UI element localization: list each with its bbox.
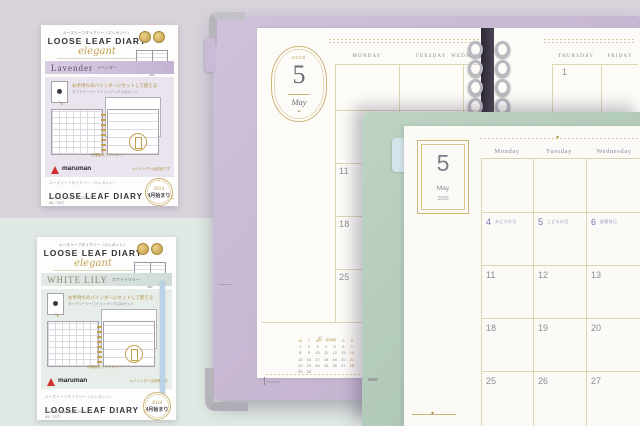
index-tab-sketch: [131, 349, 138, 361]
gold-stamp-icon: [137, 243, 149, 255]
frame-ornament-icon: ✦: [297, 109, 301, 115]
date-cell: 12: [538, 270, 548, 280]
weekday-friday: FRIDAY: [607, 54, 632, 59]
binder-sketch-dot: [57, 89, 62, 94]
date-cell: 11: [486, 270, 495, 280]
grid-line: [552, 64, 553, 114]
weekday-tuesday: TUESDAY: [415, 54, 446, 59]
illustration-band: ↪ お手持ちのバインダーにセットして使える ダイアリーリーフ＋インデックスのセッ…: [45, 77, 174, 177]
date-cell: 19: [538, 323, 548, 333]
grid-line: [481, 212, 640, 213]
gold-stamp-icon: [151, 243, 163, 255]
footer-spec2: A5／20穴: [45, 415, 60, 420]
grid-line: [601, 64, 602, 114]
date-cell: 26: [538, 376, 548, 386]
package-title: LOOSE LEAF DIARY: [44, 248, 143, 258]
frame-date: 5: [437, 150, 450, 177]
holiday-note: 振替休日: [600, 219, 617, 225]
holiday-note: こどもの日: [547, 219, 569, 225]
maruman-logo-text: maruman: [62, 165, 91, 172]
badge-label: 4月始まり: [148, 192, 171, 199]
package-script-name: elegant: [74, 258, 112, 269]
holiday-date-cell: 6: [591, 217, 596, 227]
gold-dotted-border-right2: [544, 42, 636, 43]
color-name-stripe: Lavender ラベンダー: [45, 61, 174, 74]
frame-date: 5: [293, 60, 306, 90]
package-script-name: elegant: [78, 46, 116, 57]
grid-line: [335, 64, 481, 65]
date-cell: 25: [339, 272, 350, 282]
spiral-binding-icon: [101, 111, 106, 151]
gold-dotted-border-left: [329, 39, 480, 40]
badge-label: 4月始まり: [146, 406, 169, 413]
binder-side-tab: [205, 38, 215, 72]
maruman-logo-icon: [47, 378, 55, 386]
binder-ring-icon: [495, 60, 510, 77]
frame-year: 2020: [437, 196, 448, 202]
spread-illustration: 月曜始まりマンスリー: [51, 97, 168, 161]
grid-line: [481, 371, 640, 372]
left-page-sketch: [51, 109, 103, 155]
grid-line: [533, 158, 534, 426]
binder-ring-icon: [468, 60, 483, 77]
date-cell: 13: [591, 270, 601, 280]
weekday-monday: Monday: [494, 148, 519, 155]
binder-ring-icon: [495, 79, 510, 96]
memo-tab-label: memo: [267, 379, 280, 384]
color-name: Lavender: [51, 63, 93, 73]
grid-line: [586, 158, 587, 426]
grid-line: [481, 318, 640, 319]
feature-callout-text: 月曜始まりマンスリー: [91, 153, 126, 158]
footer-spec2: A5／20穴: [49, 201, 64, 206]
weekday-wednesday: Wednesday: [596, 148, 631, 155]
grid-line: [552, 64, 638, 65]
product-photo-scene: 2020 5 May ✦ MONDAY TUESDAY WEDNESDAY TH…: [0, 0, 640, 426]
weekday-thursday: THURSDAY: [558, 54, 594, 59]
color-name: WHITE LILY: [47, 275, 108, 285]
binder-ring-icon: [468, 41, 483, 58]
frame-month: May: [437, 185, 449, 192]
holiday-date-cell: 4: [486, 217, 491, 227]
date-cell: 27: [591, 376, 601, 386]
grid-line: [335, 110, 481, 111]
left-page-sketch: [47, 321, 99, 367]
header-rule: [57, 58, 137, 59]
date-cell: 18: [486, 323, 496, 333]
package-whitelily: ルーズリーフダイアリー〈エレガント〉 LOOSE LEAF DIARY eleg…: [37, 237, 176, 420]
weekday-tuesday: Tuesday: [546, 148, 572, 155]
month-frame-rect: 5 May 2020: [417, 140, 469, 214]
logo-note: ＊バインダーは別売です: [132, 167, 171, 172]
date-cell: 25: [486, 376, 496, 386]
grid-line: [481, 158, 640, 159]
feature-callout-circle: [129, 133, 147, 151]
feature-heading: お手持ちのバインダーにセットして使える: [68, 295, 153, 301]
illustration-band: ↪ お手持ちのバインダーにセットして使える ダイアリーリーフ＋インデックスのセッ…: [41, 289, 172, 389]
date-cell: 20: [591, 323, 601, 333]
gold-stamp-icon: [139, 31, 151, 43]
cover-clasp-line: [219, 284, 233, 285]
binder-corner-protector-bottom: [205, 368, 248, 411]
grid-line: [481, 265, 640, 266]
grid-line: [481, 158, 482, 426]
start-month-badge: 2024 4月始まり: [145, 178, 173, 206]
maruman-logo-icon: [51, 166, 59, 174]
feature-callout-text: 月曜始まりマンスリー: [87, 365, 122, 370]
binder-sketch-dot: [53, 301, 58, 306]
package-lavender: ルーズリーフダイアリー〈エレガント〉 LOOSE LEAF DIARY eleg…: [41, 25, 178, 206]
date-cell: 18: [339, 219, 350, 229]
gold-dotted-border-left2: [329, 42, 480, 43]
binder-ring-icon: [468, 79, 483, 96]
header-rule: [53, 270, 133, 271]
color-kana: ラベンダー: [97, 65, 117, 71]
feature-sub: ダイアリーリーフ＋インデックスのセット: [68, 302, 134, 307]
color-kana: ホワイトリリー: [112, 277, 140, 283]
feature-heading: お手持ちのバインダーにセットして使える: [72, 83, 157, 89]
month-frame-ornate: 2020 5 May ✦: [271, 46, 327, 122]
maruman-logo-text: maruman: [58, 377, 87, 384]
gold-dotted-border-right: [544, 39, 636, 40]
mini-calendar-grid: MTWTFSS123456789101112131415161718192021…: [296, 338, 358, 375]
grid-line: [335, 64, 336, 322]
feature-sub: ダイアリーリーフ＋インデックスのセット: [72, 90, 138, 95]
feature-callout-circle: [125, 345, 143, 363]
gold-stamp-icon: [153, 31, 165, 43]
index-tab-sketch: [135, 137, 142, 149]
frame-month: May: [291, 97, 306, 107]
sage-cover-clasp: [368, 378, 378, 381]
start-month-badge: 2024 4月始まり: [143, 392, 171, 420]
binder-ring-icon: [495, 41, 510, 58]
frame-divider: [288, 94, 310, 95]
flourish-diamond-icon: ◆: [431, 410, 434, 415]
color-name-stripe: WHITE LILY ホワイトリリー: [41, 273, 172, 286]
weekday-monday: MONDAY: [352, 54, 381, 59]
memo-tab-tick: [264, 377, 265, 385]
date-cell: 1: [562, 67, 567, 77]
holiday-note: みどりの日: [495, 219, 517, 225]
date-cell: 11: [339, 166, 349, 176]
chain-diamond-icon: ◆: [556, 134, 559, 139]
spiral-binding-icon: [97, 323, 102, 363]
spread-illustration: 月曜始まりマンスリー: [47, 309, 164, 373]
bookmark-ribbon: [160, 281, 165, 399]
holiday-date-cell: 5: [538, 217, 543, 227]
